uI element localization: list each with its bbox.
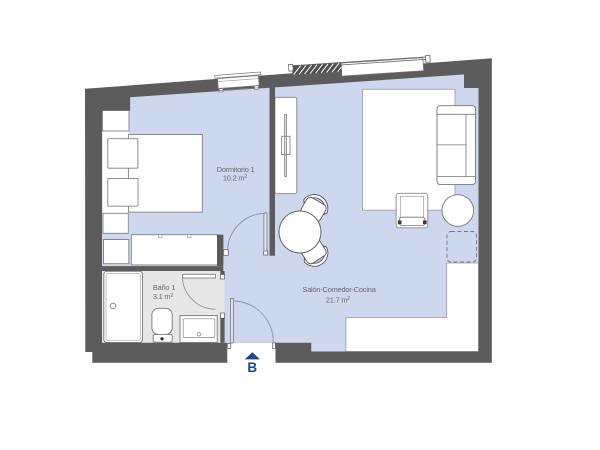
svg-text:21.7 m2: 21.7 m2 [326, 295, 350, 304]
svg-text:10.2 m2: 10.2 m2 [223, 173, 247, 182]
svg-text:Baño 1: Baño 1 [153, 283, 175, 292]
svg-text:Salón-Comedor-Cocina: Salón-Comedor-Cocina [302, 285, 376, 294]
svg-text:3.1 m2: 3.1 m2 [153, 292, 173, 301]
svg-text:B: B [247, 360, 257, 375]
